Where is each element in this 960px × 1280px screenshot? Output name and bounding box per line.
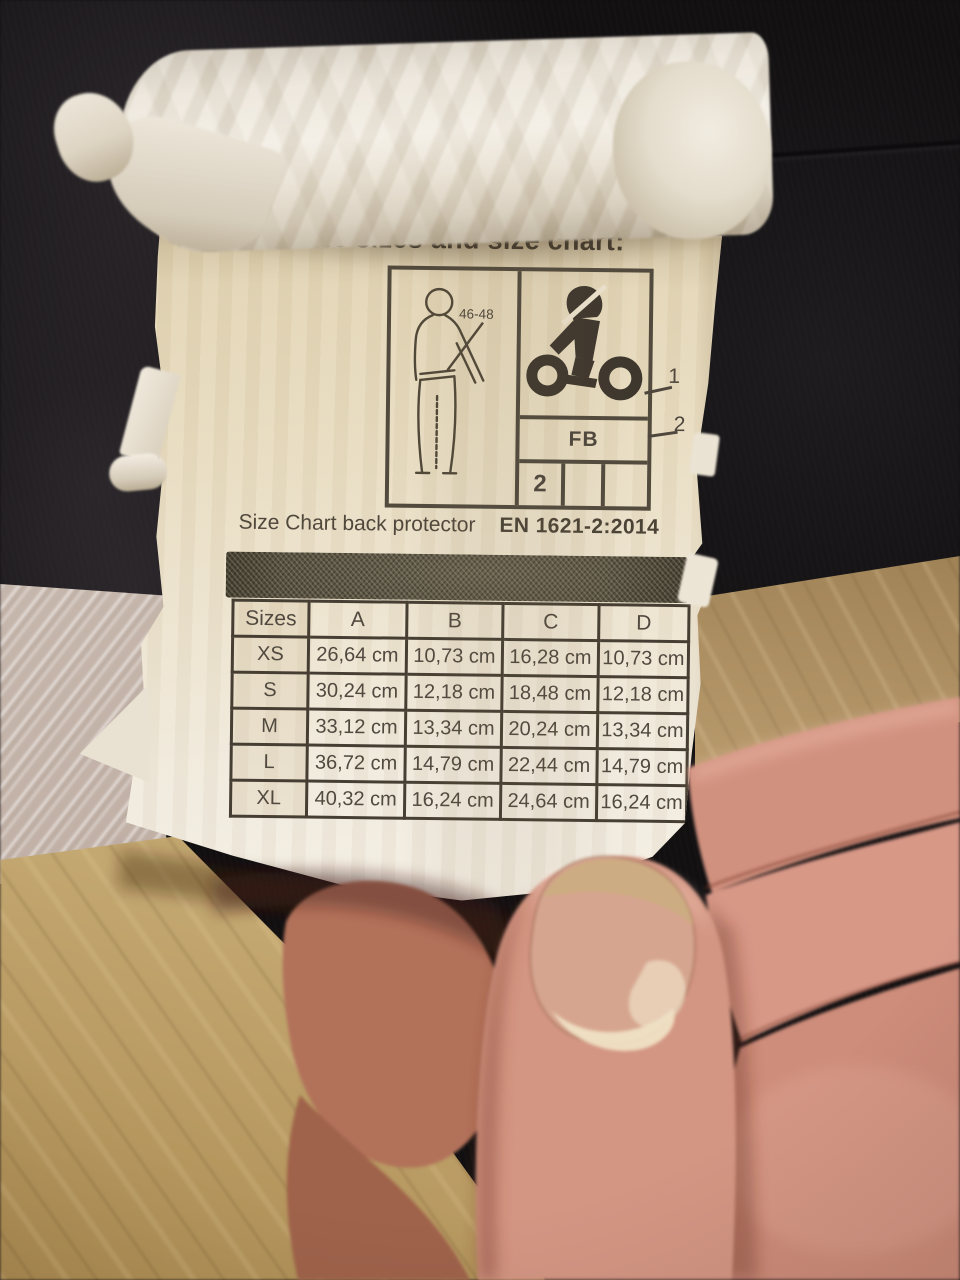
holding-hand bbox=[0, 0, 960, 1280]
photo-canvas: Available sizes and size chart: bbox=[0, 0, 960, 1280]
